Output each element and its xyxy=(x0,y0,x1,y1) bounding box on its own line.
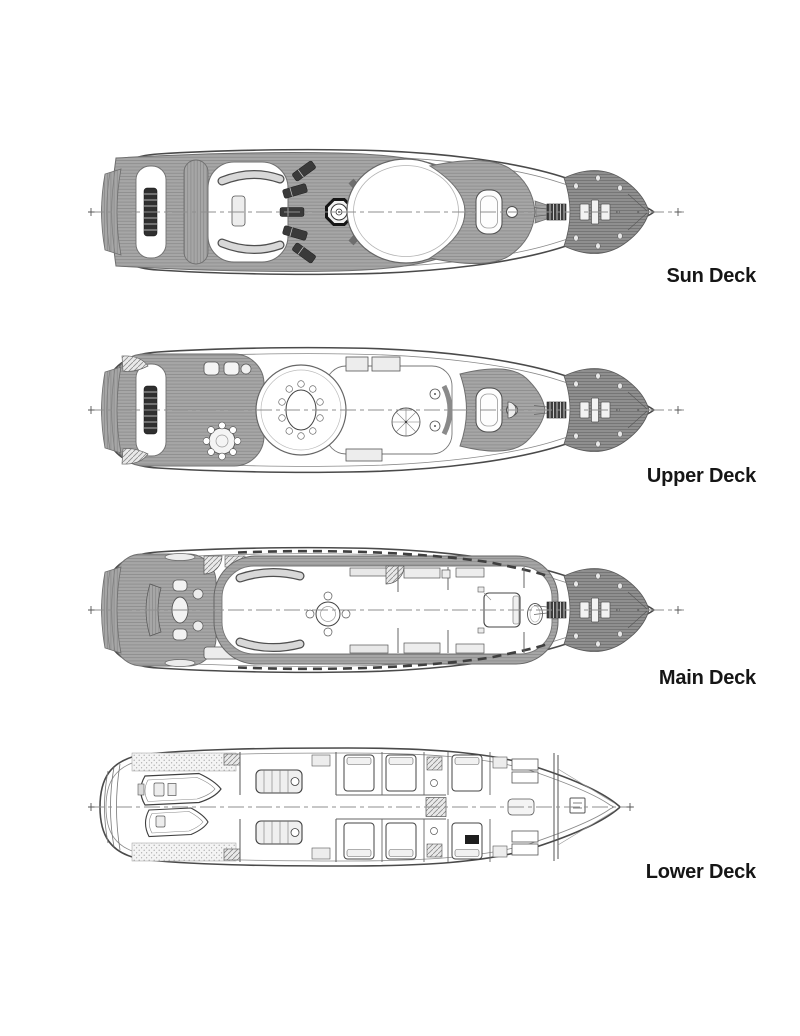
engine-port xyxy=(256,770,302,793)
aft-round-table xyxy=(203,422,241,460)
deck-plans-figure: Sun Deck xyxy=(0,0,800,1036)
lazarette-port xyxy=(132,753,236,771)
main-deck-label: Main Deck xyxy=(546,668,756,690)
engine-starboard xyxy=(256,821,302,844)
garage-stairs-starboard xyxy=(224,849,240,860)
garage-stairs-port xyxy=(224,754,240,765)
sun-deck-plan xyxy=(88,144,688,280)
forepeak-hatch xyxy=(570,798,585,813)
wardrobe-port xyxy=(456,568,484,577)
engine-room-aux-starboard xyxy=(312,848,330,859)
centerline-tick-left xyxy=(88,803,95,811)
centerline-tick-right xyxy=(675,208,682,216)
upper-deck-plan-drawing xyxy=(88,342,688,478)
lower-deck-plan xyxy=(88,739,688,875)
sun-deck-plan-drawing xyxy=(88,144,688,280)
utility-box xyxy=(465,835,479,844)
centerline-tick-left xyxy=(88,406,95,414)
lower-deck-label: Lower Deck xyxy=(546,862,756,884)
centerline-tick-right xyxy=(675,606,682,614)
centerline-tick-left xyxy=(88,208,95,216)
lower-deck-plan-drawing xyxy=(88,739,688,875)
upper-deck-label: Upper Deck xyxy=(546,466,756,488)
centerline-tick-right xyxy=(675,406,682,414)
transom-box-port xyxy=(165,554,195,561)
engine-room-aux-port xyxy=(312,755,330,766)
upper-deck-plan xyxy=(88,342,688,478)
bar-console xyxy=(232,196,245,226)
sideboard-port xyxy=(350,568,388,576)
lazarette-starboard xyxy=(132,843,236,861)
wardrobe-starboard xyxy=(456,644,484,653)
sun-deck-label: Sun Deck xyxy=(546,266,756,288)
centerline-tick-left xyxy=(88,606,95,614)
main-deck-plan-drawing xyxy=(88,542,688,678)
main-deck-plan xyxy=(88,542,688,678)
transom-box-starboard xyxy=(165,660,195,667)
centerline-tick-right xyxy=(627,803,634,811)
spiral-staircase xyxy=(392,408,420,436)
sideboard-starboard xyxy=(350,645,388,653)
